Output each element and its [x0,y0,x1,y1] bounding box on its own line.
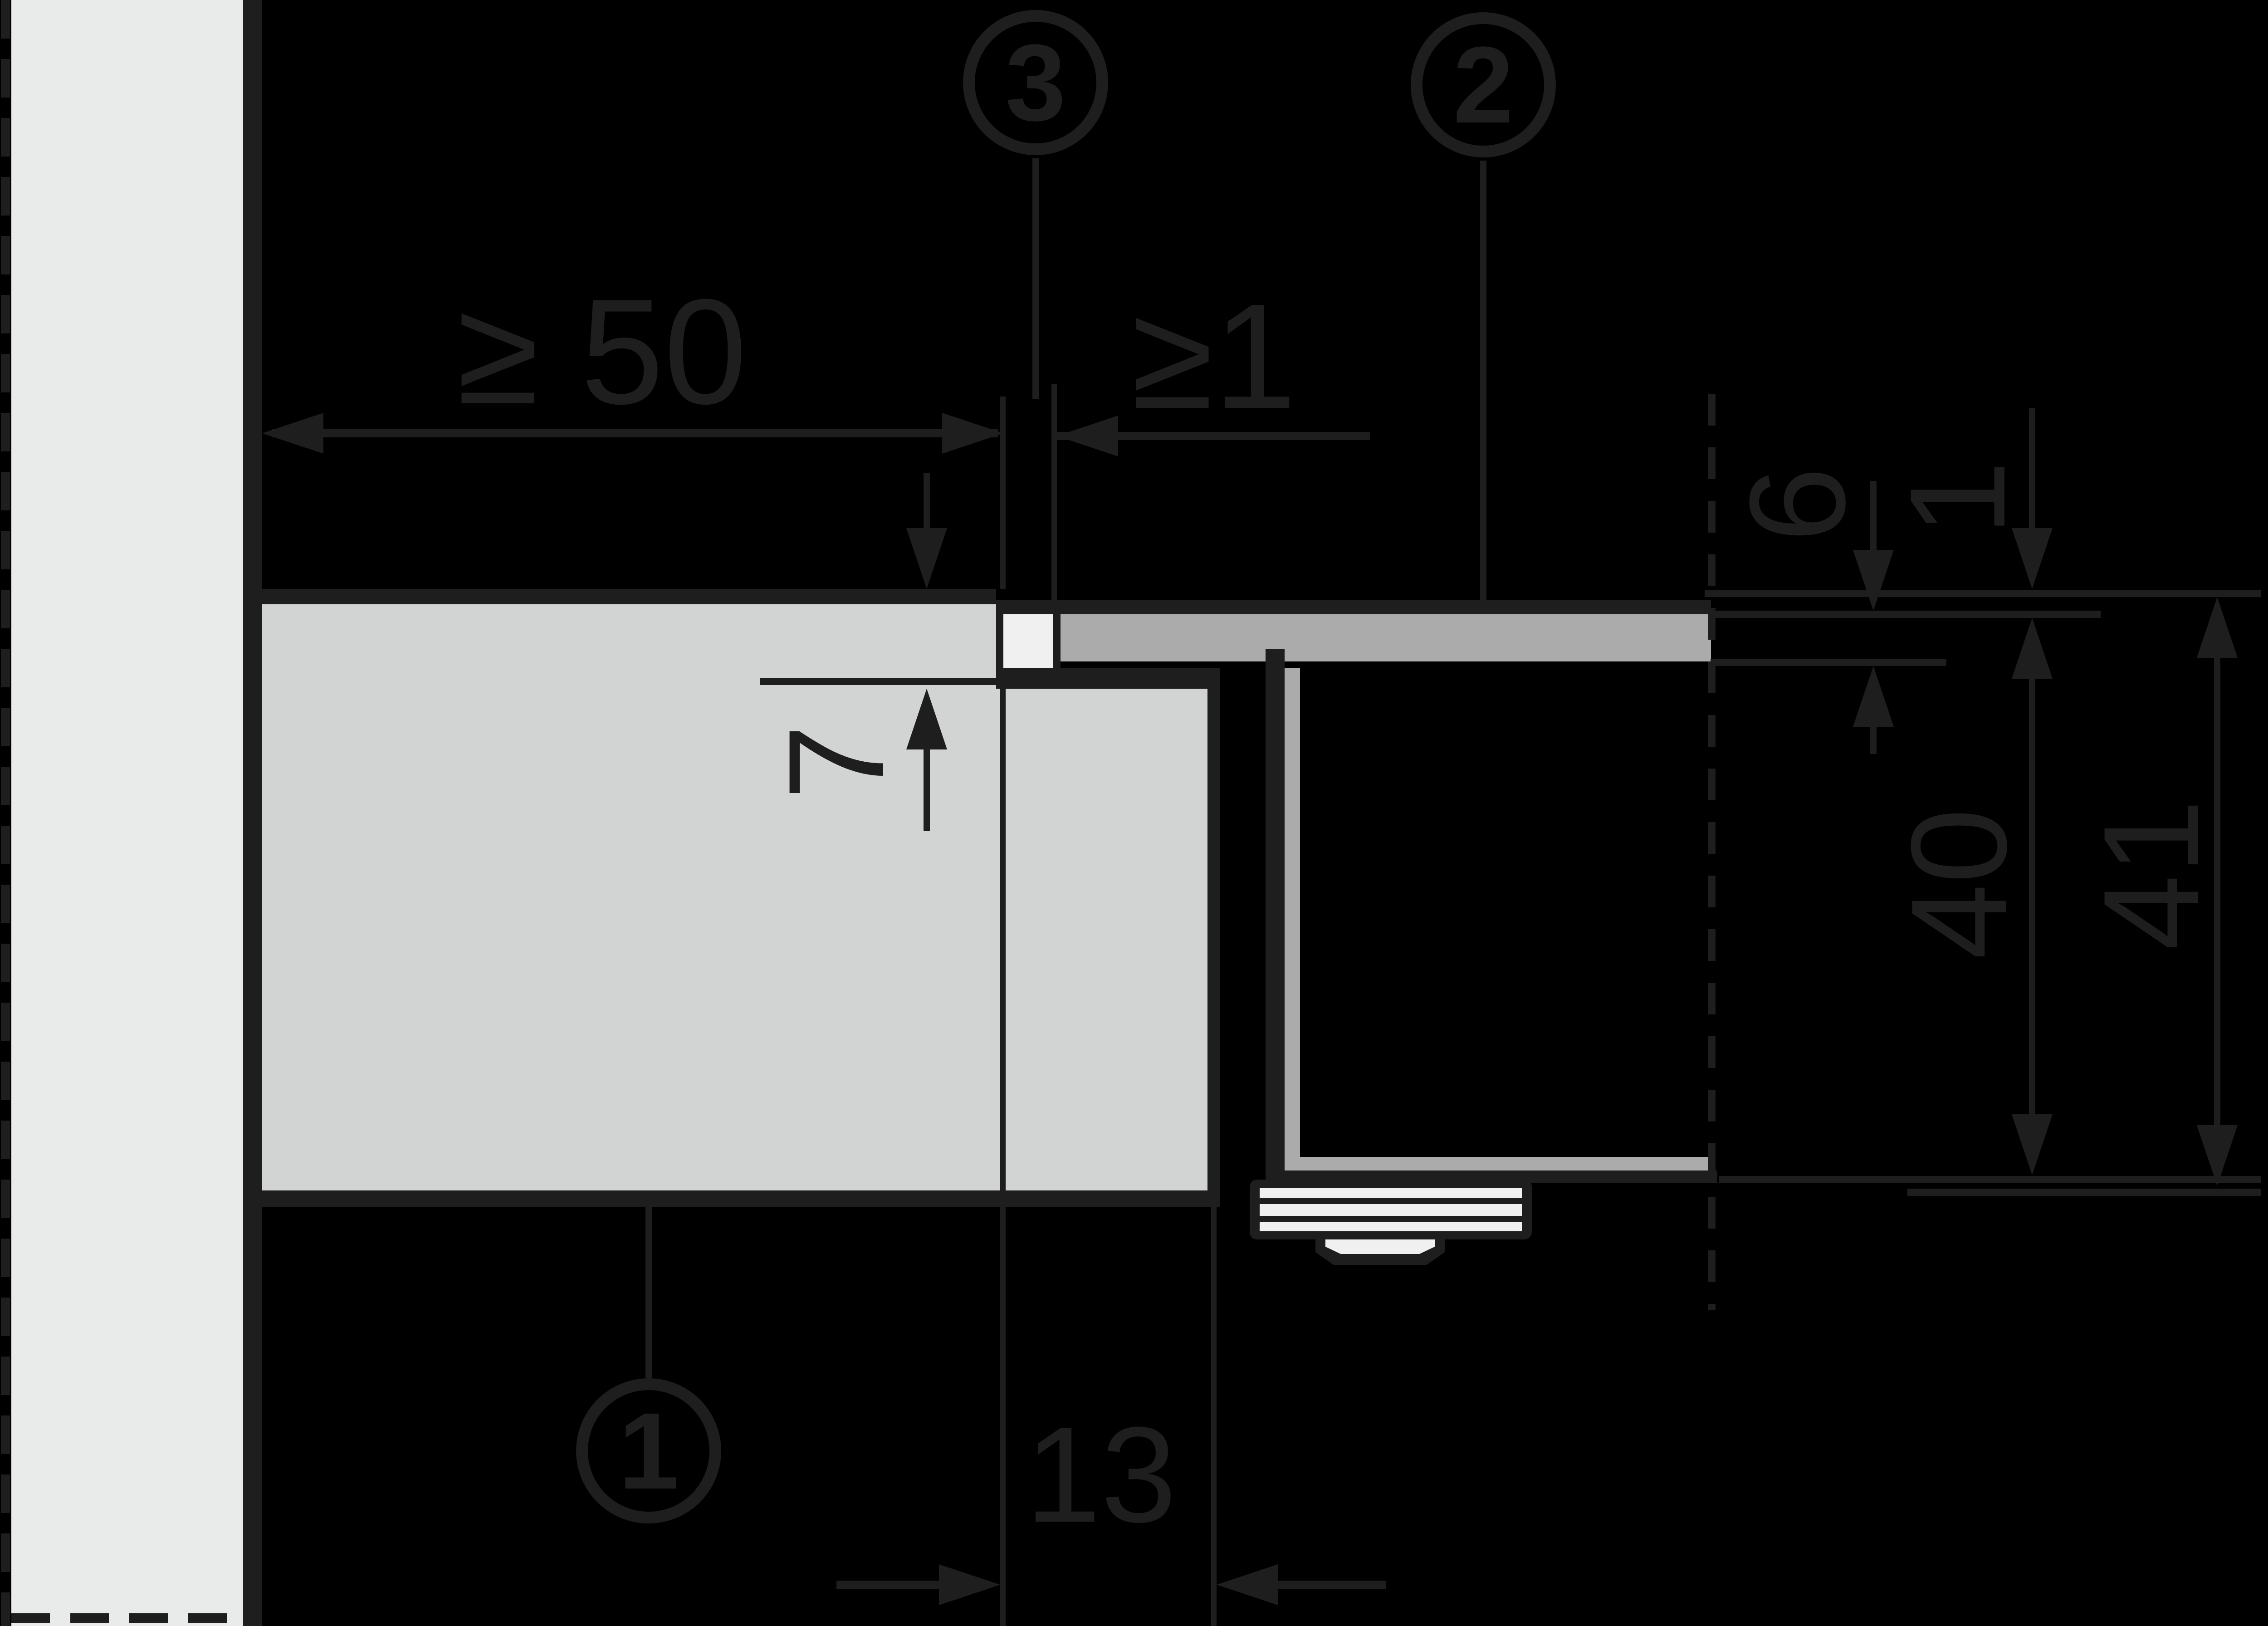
dim-40-label: 40 [1891,808,2027,960]
center-dashed-line [1708,394,1716,1310]
callout-1-label: 1 [618,1388,679,1513]
dim-1-label: 1 [1889,460,2025,536]
callout-circle-3: 3 [963,10,1108,155]
dim-41-label: 41 [2083,799,2219,950]
dim-1-arrow-down [2012,528,2053,589]
callout-3-leader [1032,158,1039,399]
dim-6-shaft-lower [1870,727,1877,754]
dim-13-line-right [1278,1581,1386,1589]
dim-6-arrow-down [1853,550,1894,611]
ext-line-frame-underside [1711,659,1946,666]
callout-3-label: 3 [1005,20,1066,145]
seal-strip [1003,614,1053,668]
dim-6-arrow-up [1853,666,1894,727]
rabbet-top-edge [996,668,1220,689]
callout-circle-2: 2 [1411,12,1556,157]
dim-7-arrow-up [906,689,947,749]
wall-break-line-left [1,0,10,1626]
callout-circle-1: 1 [576,1378,721,1523]
dim-6-label: 6 [1729,467,1865,543]
ext-line-cutout-right [1051,384,1057,614]
wall [11,0,247,1626]
installation-diagram: ≥ 50 ≥1 7 6 1 40 41 13 3 2 [0,0,2268,1626]
tub-bottom-inner [1285,1157,1711,1171]
worktop-bottom-edge [262,1190,1220,1207]
worktop-rabbet-section [1006,689,1207,1190]
dim-40-arrow-down [2012,1114,2053,1175]
dim-13-arrow-left [1217,1564,1278,1605]
wall-front-edge [243,0,262,1626]
clamp-body-line-upper [1260,1198,1522,1204]
clamp-body [1260,1188,1522,1231]
ext-line-appliance-bottom [1719,1176,2261,1183]
worktop-top-edge [262,589,996,604]
ext-line-cutout-left-upper [1000,397,1006,589]
dim-ge50-arrow-left [262,413,323,454]
ext-line-frame-top [1711,611,2101,618]
dim-7-arrow-down [906,528,947,589]
dim-7-label: 7 [768,725,904,800]
rabbet-extension-line [760,678,996,685]
ext-line-cutout-left-lower [1000,680,1006,1626]
dim-13-line-left [836,1581,939,1589]
dim-7-shaft-lower [924,749,930,831]
frame-flange [1061,614,1711,661]
frame-top-edge [996,600,1711,614]
dim-ge1-arrow [1057,416,1118,456]
dim-ge1-label: ≥1 [1131,281,1297,431]
worktop-front-edge [1207,668,1220,1207]
ext-line-worktop-front [1211,1207,1217,1626]
dim-13-arrow-right [939,1564,1000,1605]
callout-1-leader [645,1207,652,1378]
tub-inner-wall [1285,668,1300,1157]
dim-ge50-label: ≥ 50 [457,277,747,426]
clamp-body-line-lower [1260,1216,1522,1222]
callout-2-label: 2 [1453,22,1513,147]
ext-line-worktop-surface [1705,590,2261,597]
tub-outer-wall [1266,649,1285,1183]
ext-line-clamp-bottom [1907,1189,2261,1196]
dim-ge50-arrow-right [942,413,1003,454]
seal-strip-right-edge [1053,614,1061,668]
dim-41-arrow-down [2197,1125,2238,1186]
dim-13-label: 13 [1025,1406,1177,1543]
wall-break-line-bottom [11,1613,247,1623]
callout-2-leader [1480,161,1486,600]
clamp-tab [1325,1239,1435,1254]
dim-41-arrow-up [2197,597,2238,658]
dim-1-arrow-up [2012,618,2053,679]
worktop-left-section [262,604,1000,1190]
dim-7-shaft-upper [924,473,930,532]
